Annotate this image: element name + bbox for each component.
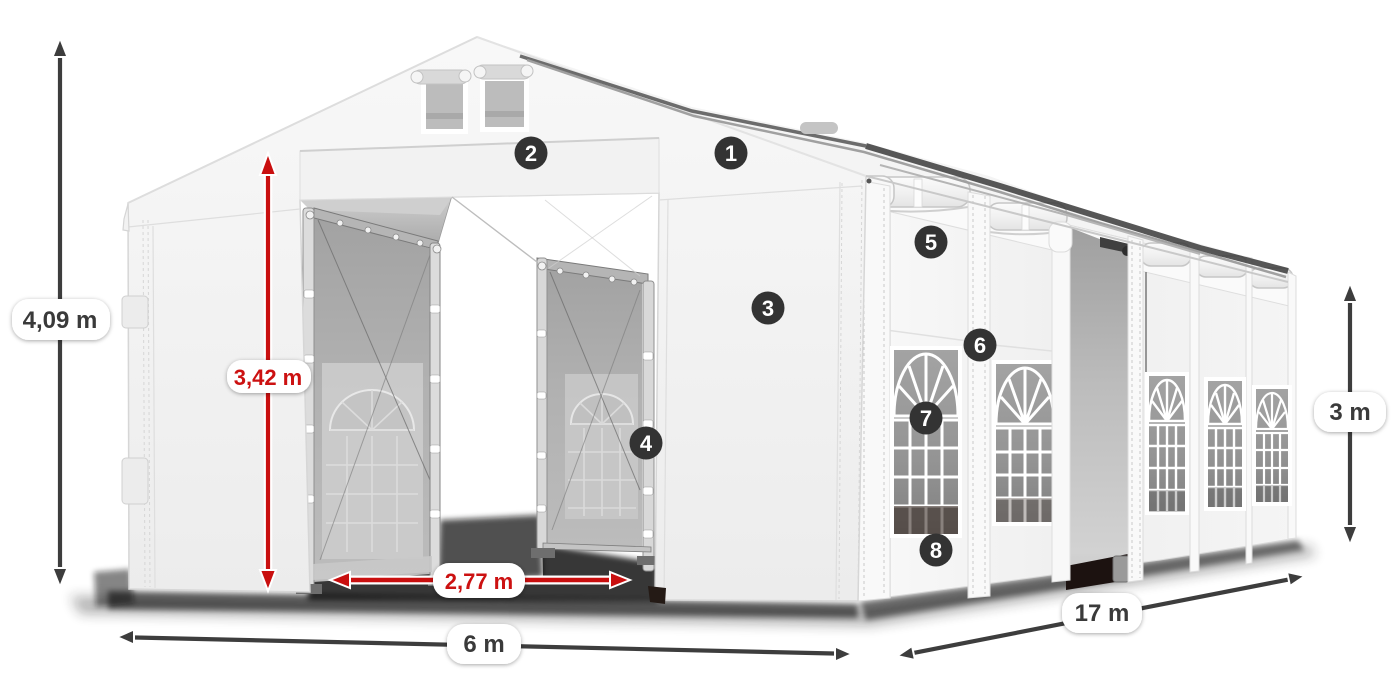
svg-text:4: 4 xyxy=(640,431,653,456)
svg-text:7: 7 xyxy=(920,406,932,431)
svg-text:3,42 m: 3,42 m xyxy=(234,365,303,390)
svg-text:6 m: 6 m xyxy=(463,631,504,658)
svg-text:4,09 m: 4,09 m xyxy=(23,307,98,334)
svg-text:5: 5 xyxy=(925,230,937,255)
svg-text:1: 1 xyxy=(725,141,737,166)
svg-text:8: 8 xyxy=(930,538,942,563)
svg-text:3: 3 xyxy=(762,296,774,321)
svg-text:6: 6 xyxy=(974,333,986,358)
svg-text:2,77 m: 2,77 m xyxy=(445,569,514,594)
svg-text:2: 2 xyxy=(525,141,537,166)
svg-text:17 m: 17 m xyxy=(1075,600,1130,627)
svg-text:3 m: 3 m xyxy=(1329,399,1370,426)
